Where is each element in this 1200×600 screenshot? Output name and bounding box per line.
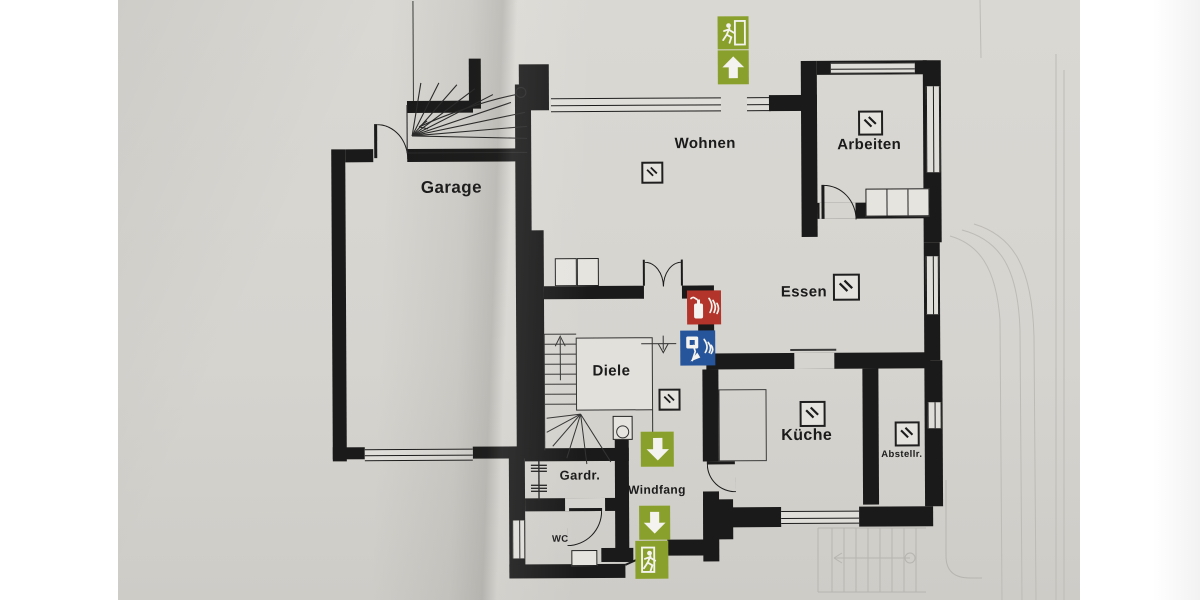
final-exit-down-sign [635,506,671,579]
wall [703,499,733,539]
arrow-up-icon [718,50,749,84]
wall [345,149,373,162]
exterior-stair [405,80,529,157]
exit-route-up-sign [718,16,749,84]
room-label-essen: Essen [781,283,827,300]
door-arc [377,124,408,159]
room-label-windfang: Windfang [628,483,686,497]
room-label-wohnen: Wohnen [674,135,735,152]
shaft-box [555,258,577,286]
arrow-down-icon [642,434,672,465]
window [926,86,940,172]
wall [601,548,633,562]
detector-icon [641,162,663,184]
room-label-garage: Garage [421,178,482,198]
window [831,62,915,73]
running-man-icon [718,16,749,49]
sliding-door-line [790,349,836,351]
arrow-down-icon [639,506,670,540]
wall [729,507,781,527]
room-label-kueche: Küche [781,427,832,445]
room-label-wc: WC [552,534,569,545]
door-arc [645,262,664,287]
wall [333,447,365,459]
wall [702,369,718,461]
wall [509,564,625,579]
wall [667,539,705,555]
wall [544,286,644,300]
floor-plan: Garage Wohnen Arbeiten Essen Küche Abste… [116,0,1081,600]
wall [509,455,526,577]
detector-icon [800,401,826,427]
door-arc [663,262,682,287]
room-label-arbeiten: Arbeiten [837,136,901,153]
wall [801,61,818,237]
window [926,256,939,314]
detector-icon [895,421,920,446]
window [512,520,525,558]
wall [331,149,347,461]
floor-plan-photo: Garage Wohnen Arbeiten Essen Küche Abste… [0,0,1200,600]
door-arc [567,511,602,546]
kitchen-counter [718,389,766,461]
window [928,402,942,428]
manual-call-point-sign [680,330,715,365]
shelf [865,188,929,216]
window [551,97,721,112]
room-label-diele: Diele [592,362,630,379]
window [781,511,859,524]
detector-icon [833,274,860,301]
shaft-box [577,258,599,286]
detector-icon [658,389,680,411]
window [747,97,771,111]
detector-icon [858,111,883,136]
door-arc [823,185,856,220]
exit-route-down-sign [641,432,674,467]
room-label-garderobe: Gardr. [560,467,601,482]
fire-extinguisher-sign [687,290,721,324]
paper-sheet: Garage Wohnen Arbeiten Essen Küche Abste… [118,0,1080,600]
wall [862,369,879,505]
wall [924,360,943,506]
wall [859,506,933,526]
door-arc [707,464,736,492]
wc-sink [571,550,597,566]
door-opening [794,353,834,369]
running-man-icon [635,541,668,579]
window [365,449,473,462]
room-label-abstellraum: Abstellr. [881,449,922,460]
